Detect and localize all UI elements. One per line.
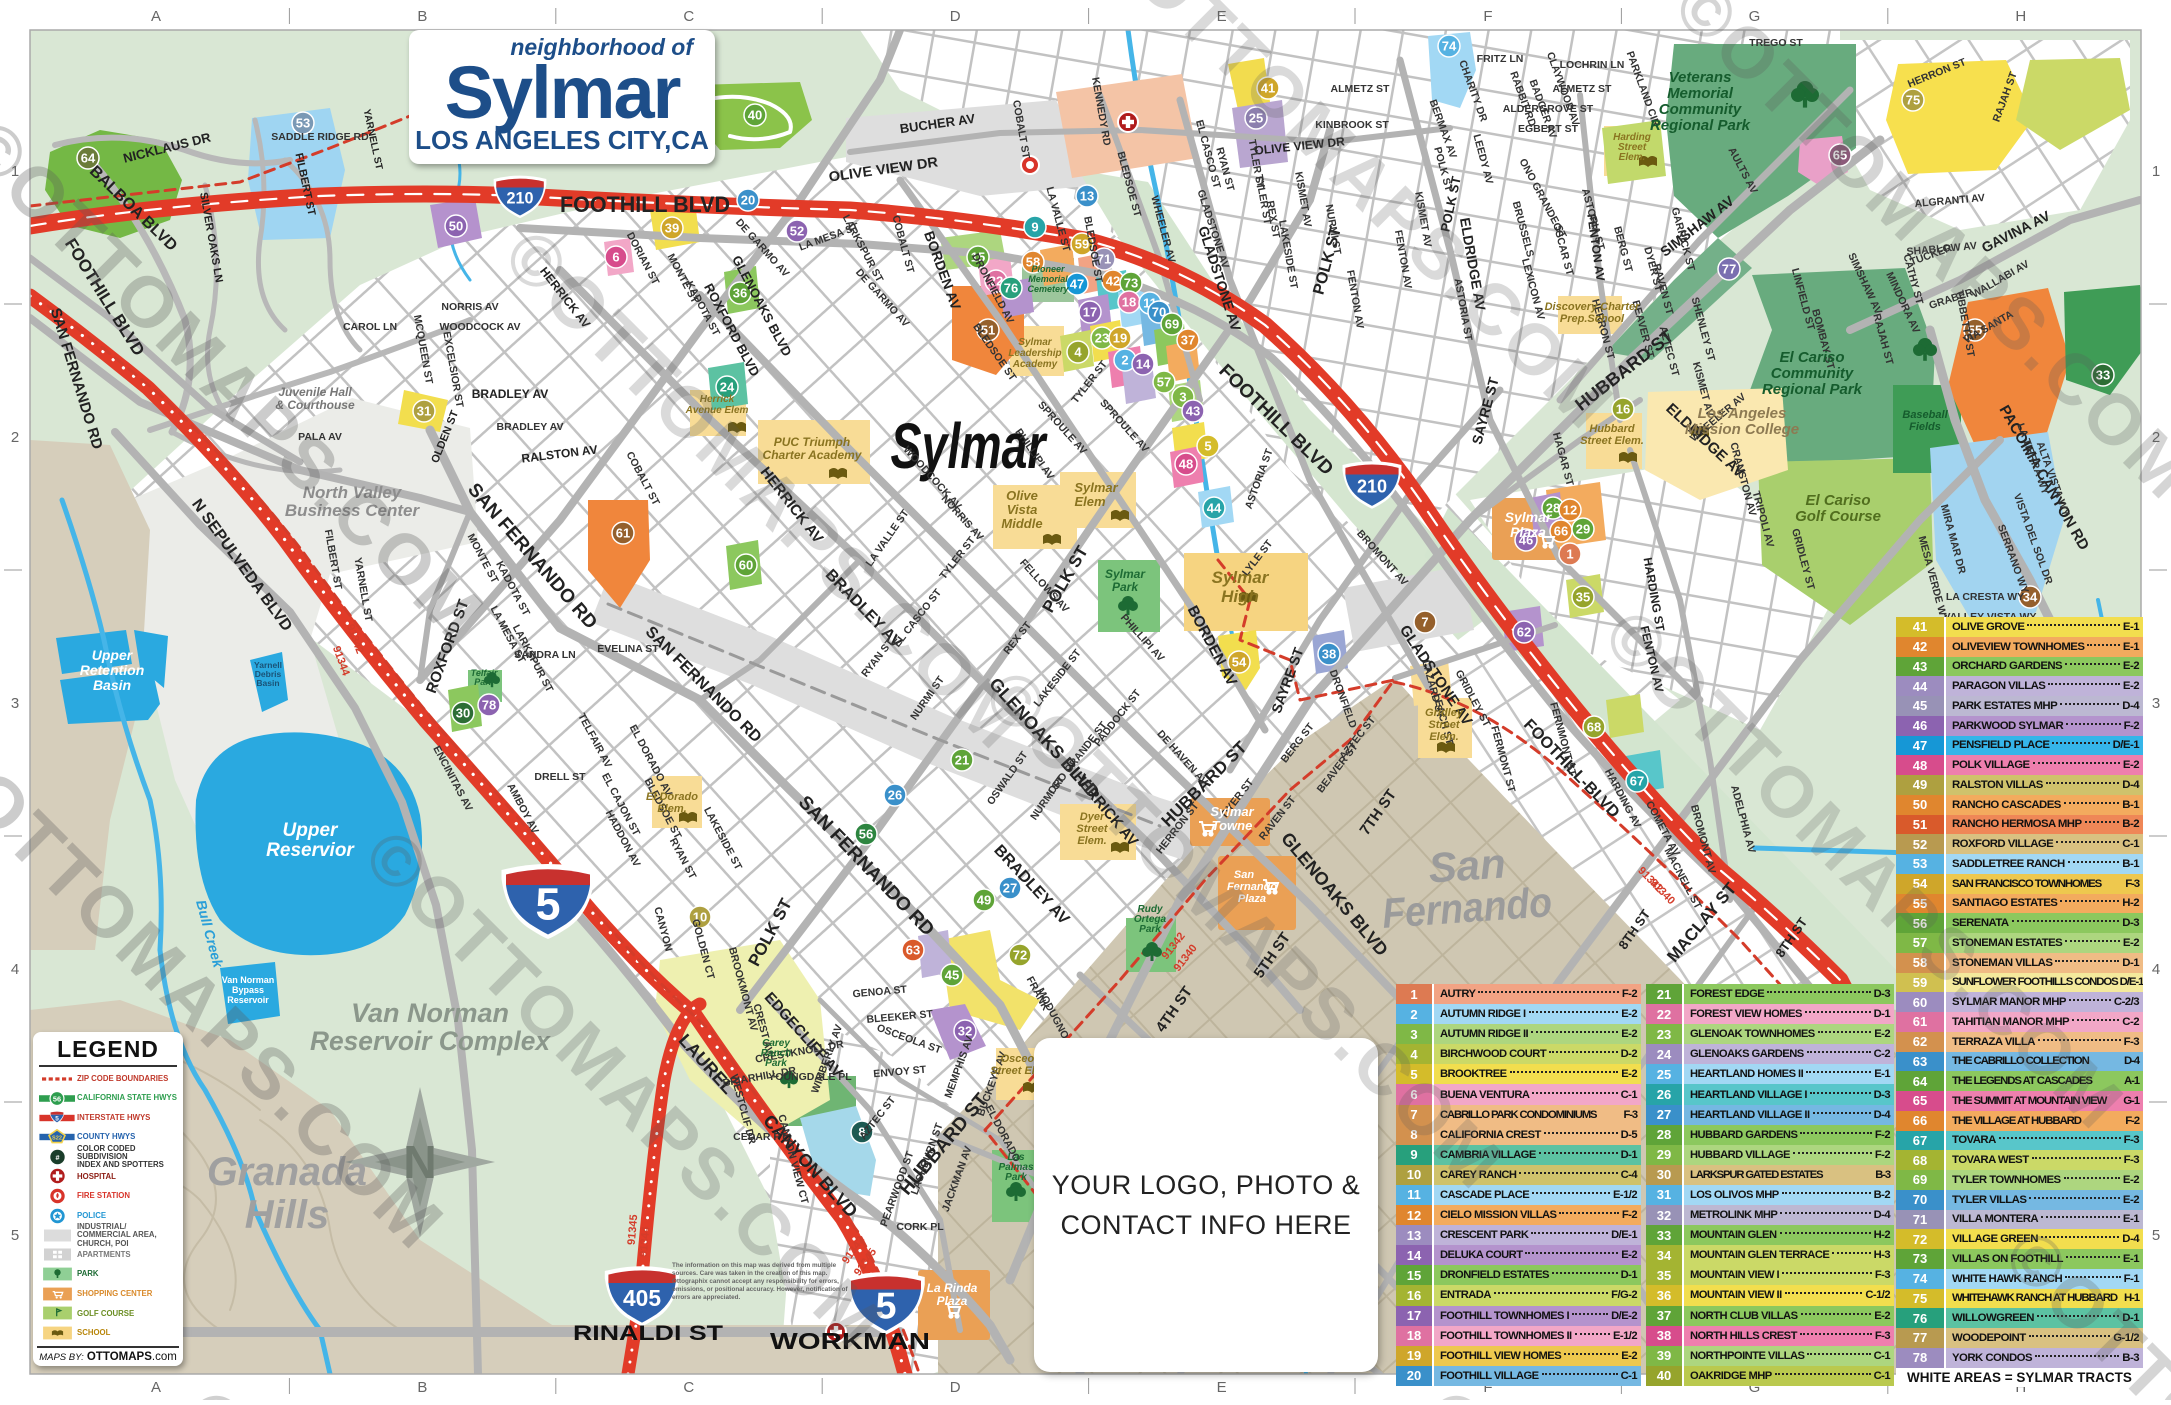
svg-text:Cemetery: Cemetery <box>1027 284 1069 294</box>
svg-text:63: 63 <box>906 943 920 958</box>
svg-text:SANDRA LN: SANDRA LN <box>514 649 575 661</box>
svg-text:2: 2 <box>11 429 19 446</box>
svg-text:5: 5 <box>11 1227 19 1244</box>
svg-text:4: 4 <box>11 961 19 978</box>
svg-text:Van Norman: Van Norman <box>351 998 509 1028</box>
svg-text:Sylmar: Sylmar <box>1212 568 1270 587</box>
svg-text:3: 3 <box>11 695 19 712</box>
svg-text:El Cariso: El Cariso <box>1779 349 1844 366</box>
svg-text:67: 67 <box>1630 774 1644 789</box>
svg-text:Upper: Upper <box>92 647 134 663</box>
svg-text:Prep.School: Prep.School <box>1560 313 1625 325</box>
svg-text:DRELL ST: DRELL ST <box>534 771 586 783</box>
svg-text:210: 210 <box>507 190 534 208</box>
svg-text:Avenue Elem: Avenue Elem <box>685 405 749 416</box>
svg-text:5: 5 <box>535 879 560 930</box>
svg-text:25: 25 <box>1249 111 1263 126</box>
svg-text:38: 38 <box>1322 647 1336 662</box>
svg-text:Reservior: Reservior <box>266 840 355 861</box>
svg-text:2: 2 <box>2152 429 2160 446</box>
svg-text:66: 66 <box>1554 524 1568 539</box>
svg-text:31: 31 <box>417 404 431 419</box>
svg-text:Hills: Hills <box>245 1193 329 1237</box>
svg-text:CAROL LN: CAROL LN <box>343 321 397 333</box>
svg-text:Street Elem.: Street Elem. <box>1580 435 1644 447</box>
svg-text:RINALDI ST: RINALDI ST <box>573 1322 723 1345</box>
svg-text:Fields: Fields <box>1909 421 1941 433</box>
svg-text:1: 1 <box>1566 547 1573 562</box>
svg-text:El Cariso: El Cariso <box>1805 492 1870 509</box>
svg-text:BRADLEY AV: BRADLEY AV <box>472 387 548 401</box>
svg-text:TREGO ST: TREGO ST <box>1749 37 1803 49</box>
svg-text:16: 16 <box>1616 402 1630 417</box>
svg-text:45: 45 <box>945 968 959 983</box>
svg-text:A: A <box>151 1379 161 1396</box>
svg-text:4: 4 <box>2152 961 2160 978</box>
svg-text:Los Angeles: Los Angeles <box>1698 405 1787 422</box>
svg-text:47: 47 <box>1070 277 1084 292</box>
svg-text:#: # <box>55 1153 59 1162</box>
svg-text:Memorial: Memorial <box>1667 85 1734 102</box>
svg-text:4: 4 <box>1074 345 1082 360</box>
svg-text:26: 26 <box>888 788 902 803</box>
svg-text:5: 5 <box>1204 439 1211 454</box>
svg-text:30: 30 <box>456 706 470 721</box>
svg-text:39: 39 <box>665 221 679 236</box>
svg-text:1: 1 <box>2152 163 2160 180</box>
svg-text:29: 29 <box>1576 522 1590 537</box>
svg-text:57: 57 <box>1157 375 1171 390</box>
svg-text:CEDAR PT: CEDAR PT <box>733 1131 787 1143</box>
svg-text:Park: Park <box>1139 924 1161 935</box>
svg-text:13: 13 <box>1080 189 1094 204</box>
svg-text:52: 52 <box>790 224 804 239</box>
svg-text:Park: Park <box>765 1058 787 1069</box>
svg-text:D: D <box>950 1379 961 1396</box>
svg-text:PALA AV: PALA AV <box>298 431 342 443</box>
svg-text:errors are appreciated.: errors are appreciated. <box>672 1294 741 1301</box>
svg-text:Park: Park <box>474 677 495 687</box>
svg-text:FRITZ LN: FRITZ LN <box>1477 53 1524 65</box>
svg-text:Sylmar: Sylmar <box>1210 804 1254 819</box>
svg-text:E: E <box>1217 1379 1227 1396</box>
svg-text:PUC Triumph: PUC Triumph <box>774 435 850 449</box>
svg-text:44: 44 <box>1207 501 1222 516</box>
svg-text:Dyer: Dyer <box>1080 811 1105 823</box>
svg-text:C: C <box>683 8 694 25</box>
svg-text:SADDLE RIDGE RD: SADDLE RIDGE RD <box>271 131 369 143</box>
svg-text:LA CRESTA WY: LA CRESTA WY <box>1946 591 2024 603</box>
svg-text:Juvenile Hall: Juvenile Hall <box>278 385 352 399</box>
svg-text:sources. Care was taken in the: sources. Care was taken in the creation … <box>672 1270 828 1277</box>
svg-text:Upper: Upper <box>283 820 340 841</box>
svg-text:Mission College: Mission College <box>1685 421 1799 438</box>
svg-text:Hubbard: Hubbard <box>1589 423 1635 435</box>
svg-text:Pioneer: Pioneer <box>1031 264 1065 274</box>
svg-text:Leadership: Leadership <box>1008 348 1061 359</box>
svg-text:49: 49 <box>977 893 991 908</box>
svg-text:7: 7 <box>1421 615 1428 630</box>
svg-text:69: 69 <box>1165 317 1179 332</box>
svg-text:6: 6 <box>612 250 619 265</box>
svg-text:Herrick: Herrick <box>700 394 735 405</box>
svg-text:Regional Park: Regional Park <box>1650 117 1751 134</box>
svg-text:21: 21 <box>955 753 969 768</box>
svg-text:18: 18 <box>1122 295 1136 310</box>
svg-text:D: D <box>950 8 961 25</box>
svg-text:S22: S22 <box>52 1136 62 1142</box>
svg-text:WORKMAN: WORKMAN <box>770 1328 930 1354</box>
svg-text:Street: Street <box>1428 719 1461 731</box>
svg-text:5: 5 <box>55 1115 59 1122</box>
svg-text:50: 50 <box>449 219 463 234</box>
svg-text:EVELINA ST: EVELINA ST <box>597 643 659 655</box>
svg-text:A: A <box>151 8 161 25</box>
svg-text:73: 73 <box>1124 276 1138 291</box>
svg-text:24: 24 <box>720 380 735 395</box>
svg-text:20: 20 <box>741 193 755 208</box>
svg-text:Gridley: Gridley <box>1425 707 1464 719</box>
svg-text:LOCHRIN LN: LOCHRIN LN <box>1560 59 1625 71</box>
svg-text:Community: Community <box>1771 365 1854 382</box>
svg-text:37: 37 <box>1181 333 1195 348</box>
svg-text:Basin: Basin <box>93 677 131 693</box>
svg-text:BRADLEY AV: BRADLEY AV <box>497 421 564 433</box>
svg-text:Park: Park <box>1112 580 1139 594</box>
svg-text:Ottographix cannot accept any: Ottographix cannot accept any responsibi… <box>672 1278 839 1285</box>
svg-text:High: High <box>1221 587 1259 606</box>
svg-text:Sylmar: Sylmar <box>1074 480 1118 495</box>
svg-text:& Courthouse: & Courthouse <box>275 398 355 412</box>
svg-text:Sylmar: Sylmar <box>1105 567 1146 581</box>
svg-text:75: 75 <box>1906 93 1920 108</box>
svg-text:Elem.: Elem. <box>1077 835 1106 847</box>
svg-text:64: 64 <box>81 151 96 166</box>
svg-text:43: 43 <box>1186 404 1200 419</box>
svg-text:Middle: Middle <box>1001 516 1042 531</box>
svg-text:76: 76 <box>1004 281 1018 296</box>
svg-text:40: 40 <box>748 108 762 123</box>
svg-text:74: 74 <box>1442 39 1457 54</box>
svg-text:60: 60 <box>739 558 753 573</box>
svg-text:Baseball: Baseball <box>1902 409 1948 421</box>
svg-text:3: 3 <box>2152 695 2160 712</box>
svg-text:53: 53 <box>296 116 310 131</box>
svg-text:23: 23 <box>1095 331 1109 346</box>
svg-text:Elem.: Elem. <box>1429 731 1458 743</box>
svg-text:12: 12 <box>1563 503 1577 518</box>
svg-text:56: 56 <box>859 827 873 842</box>
svg-text:The information on this map wa: The information on this map was derived … <box>672 1262 837 1269</box>
svg-text:2: 2 <box>1121 353 1128 368</box>
svg-text:56: 56 <box>53 1094 61 1103</box>
svg-text:CORK PL: CORK PL <box>896 1221 944 1233</box>
svg-text:72: 72 <box>1013 948 1027 963</box>
svg-text:G: G <box>1749 8 1761 25</box>
svg-text:17: 17 <box>1083 305 1097 320</box>
svg-text:33: 33 <box>2096 368 2110 383</box>
svg-text:61: 61 <box>616 526 630 541</box>
svg-text:Reservoir Complex: Reservoir Complex <box>310 1026 551 1056</box>
svg-text:Memorial: Memorial <box>1028 274 1068 284</box>
svg-text:48: 48 <box>1179 457 1193 472</box>
svg-text:Plaza: Plaza <box>1238 893 1266 905</box>
svg-text:Academy: Academy <box>1012 359 1058 370</box>
svg-text:Business Center: Business Center <box>285 501 421 520</box>
svg-text:35: 35 <box>1576 590 1590 605</box>
svg-text:5: 5 <box>876 1284 897 1326</box>
svg-text:14: 14 <box>1136 357 1151 372</box>
svg-text:19: 19 <box>1113 331 1127 346</box>
svg-text:Fernando: Fernando <box>1227 881 1277 893</box>
svg-text:65: 65 <box>1833 148 1847 163</box>
svg-text:Charter Academy: Charter Academy <box>763 448 863 462</box>
svg-text:Vista: Vista <box>1007 502 1038 517</box>
svg-text:Retention: Retention <box>80 662 145 678</box>
svg-text:42: 42 <box>1106 274 1120 289</box>
svg-text:68: 68 <box>1587 720 1601 735</box>
svg-text:El Dorado: El Dorado <box>646 791 698 803</box>
svg-text:Sylmar: Sylmar <box>1018 337 1052 348</box>
svg-text:North Valley: North Valley <box>303 483 403 502</box>
svg-text:1: 1 <box>11 163 19 180</box>
svg-text:Elem: Elem <box>1074 494 1106 509</box>
svg-text:ALMETZ ST: ALMETZ ST <box>1331 83 1390 95</box>
svg-text:210: 210 <box>1357 477 1387 497</box>
svg-text:5: 5 <box>2152 1227 2160 1244</box>
svg-text:41: 41 <box>1261 81 1275 96</box>
svg-text:KINBROOK ST: KINBROOK ST <box>1315 119 1389 131</box>
svg-text:405: 405 <box>623 1285 661 1311</box>
svg-text:Sylmar: Sylmar <box>1505 509 1553 525</box>
svg-text:78: 78 <box>482 698 496 713</box>
svg-text:Plaza: Plaza <box>937 1294 968 1308</box>
svg-text:Elem.: Elem. <box>657 803 686 815</box>
svg-text:NORRIS AV: NORRIS AV <box>441 301 498 313</box>
svg-text:Reservoir: Reservoir <box>227 995 269 1005</box>
svg-text:Towne: Towne <box>1212 818 1253 833</box>
svg-text:omissions, or positional accur: omissions, or positional accuracy. Howev… <box>672 1286 848 1293</box>
svg-text:N: N <box>403 1136 436 1188</box>
svg-text:San: San <box>1234 869 1254 881</box>
svg-text:H: H <box>2015 8 2026 25</box>
svg-text:77: 77 <box>1722 262 1736 277</box>
svg-text:E: E <box>1217 8 1227 25</box>
svg-text:Plaza: Plaza <box>1510 524 1546 540</box>
svg-text:Basin: Basin <box>256 678 279 688</box>
svg-text:B: B <box>417 8 427 25</box>
svg-text:Elem.: Elem. <box>1619 152 1646 163</box>
svg-text:C: C <box>683 1379 694 1396</box>
svg-text:FOOTHILL BLVD: FOOTHILL BLVD <box>560 192 730 217</box>
svg-text:62: 62 <box>1517 625 1531 640</box>
svg-text:Street: Street <box>1076 823 1109 835</box>
svg-text:Discovery Charter: Discovery Charter <box>1545 301 1640 313</box>
svg-text:Park: Park <box>1005 1172 1027 1183</box>
svg-text:F: F <box>1483 8 1492 25</box>
svg-text:Olive: Olive <box>1006 488 1038 503</box>
svg-text:Community: Community <box>1659 101 1742 118</box>
svg-text:B: B <box>417 1379 427 1396</box>
svg-text:9: 9 <box>1031 220 1038 235</box>
svg-text:Van Norman: Van Norman <box>222 975 275 985</box>
svg-text:Golf Course: Golf Course <box>1795 508 1881 525</box>
svg-text:Veterans: Veterans <box>1669 69 1732 86</box>
svg-text:Bypass: Bypass <box>232 985 264 995</box>
svg-text:Granada: Granada <box>207 1150 367 1194</box>
svg-text:Regional Park: Regional Park <box>1762 381 1863 398</box>
svg-text:27: 27 <box>1003 881 1017 896</box>
svg-text:La Rinda: La Rinda <box>927 1281 978 1295</box>
